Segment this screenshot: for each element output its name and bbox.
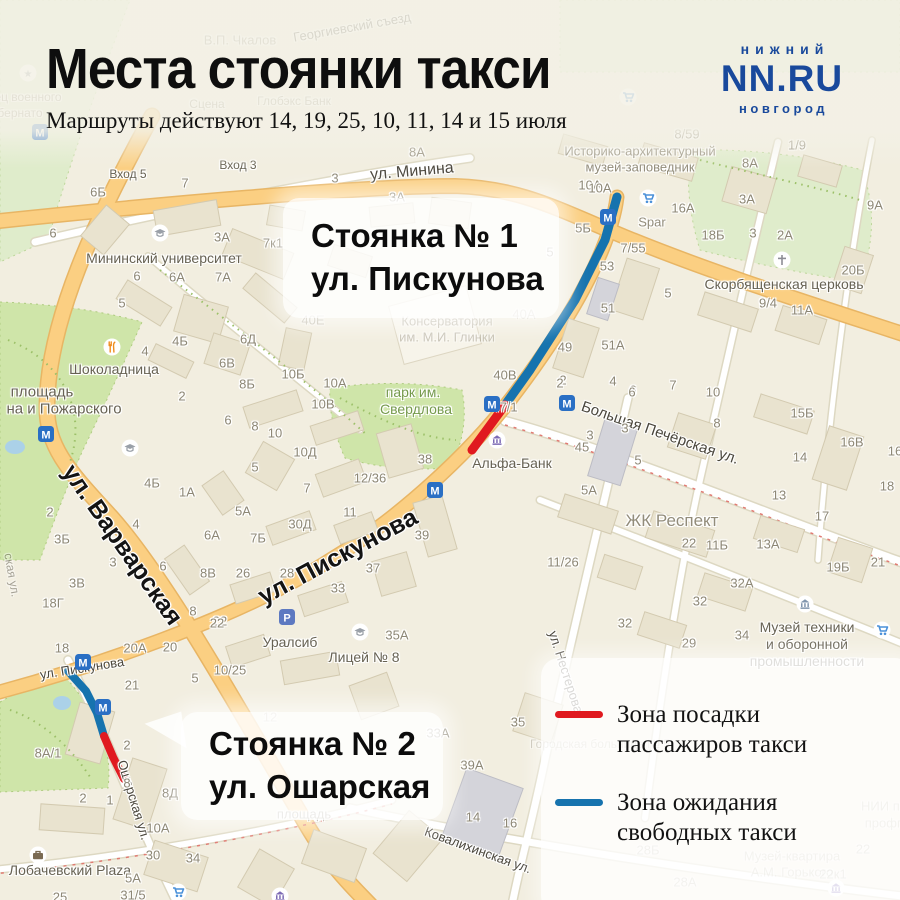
page-title: Места стоянки такси [46,40,551,100]
nnru-logo: нижний NN.RU новгород [716,42,848,115]
pickup-zone-swatch [555,711,603,718]
callout-stand-1: Стоянка № 1 ул. Пискунова [283,198,559,318]
logo-brand: NN.RU [716,60,848,97]
stand-2-title: Стоянка № 2 [209,723,443,766]
callout-stand-2: Стоянка № 2 ул. Ошарская [181,712,443,820]
legend-item-pickup: Зона посадки пассажиров такси [555,700,900,760]
waiting-zone-label: Зона ожидания свободных такси [617,788,797,848]
legend-item-waiting: Зона ожидания свободных такси [555,788,900,848]
taxi-map-infographic: ул. Варварскаяул. Пискуноваул. МининаБол… [0,0,900,900]
callout-stand-2-pointer [144,712,187,754]
stand-2-pickup-zone [104,736,124,779]
header: Места стоянки такси Маршруты действуют 1… [46,40,607,134]
waiting-zone-swatch [555,799,603,806]
logo-city-top: нижний [722,42,848,56]
stand-1-title: Стоянка № 1 [311,215,559,258]
pickup-zone-label: Зона посадки пассажиров такси [617,700,807,760]
page-subtitle: Маршруты действуют 14, 19, 25, 10, 11, 1… [46,108,607,134]
logo-city-bottom: новгород [719,102,848,115]
waiting-zone-label-line1: Зона ожидания [617,788,797,818]
stand-2-waiting-zone [68,671,104,736]
stand-1-pickup-zone [472,405,505,450]
stand-1-street: ул. Пискунова [311,258,559,301]
pickup-zone-label-line1: Зона посадки [617,700,807,730]
waiting-zone-label-line2: свободных такси [617,818,797,848]
legend: Зона посадки пассажиров такси Зона ожида… [541,658,900,900]
stand-2-street: ул. Ошарская [209,766,443,809]
pickup-zone-label-line2: пассажиров такси [617,730,807,760]
